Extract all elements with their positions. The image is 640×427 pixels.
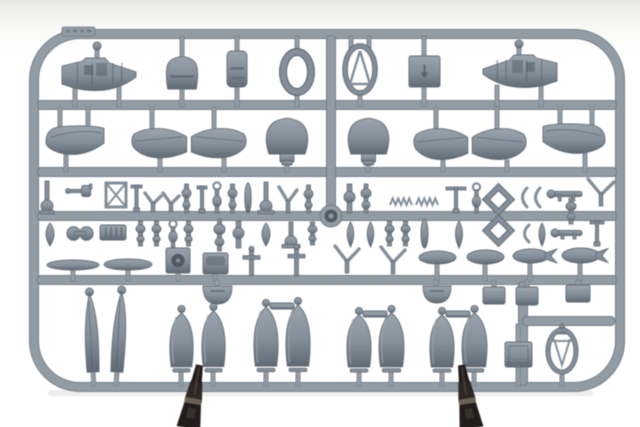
- part-spring-a: [390, 198, 412, 205]
- part-strut-x-frame: [106, 183, 126, 207]
- part-wing-outer-right: [543, 107, 605, 172]
- part-gear-fairing-left-b: [110, 286, 128, 387]
- part-t-strut: [446, 187, 466, 213]
- photo-stage: Grey injection-moulded plastic model air…: [0, 0, 640, 427]
- part-weight: [456, 221, 463, 248]
- part-rod-b: [152, 221, 161, 246]
- sprue: [34, 27, 620, 396]
- part-tail-fork-b: [381, 247, 405, 274]
- part-tripod-leg: [282, 222, 300, 248]
- part-clip-a: [523, 188, 528, 207]
- part-fairing-a: [347, 222, 354, 247]
- part-pushrod: [197, 186, 207, 213]
- part-tail-strut: [279, 187, 297, 213]
- part-cowling-cone-left: [266, 118, 307, 172]
- part-control-lever: [131, 185, 142, 212]
- part-rod-a: [136, 221, 145, 246]
- part-spring-b: [416, 198, 438, 205]
- part-wheel-spat-c1: [347, 307, 371, 386]
- part-canister: [262, 223, 270, 246]
- part-wheel-spat-d1: [430, 307, 454, 386]
- sprue-photo: [0, 0, 640, 427]
- part-rod-d: [308, 222, 317, 245]
- part-cylinder-b: [228, 184, 237, 213]
- part-rod-c: [184, 221, 193, 246]
- part-ring-pin: [213, 182, 221, 213]
- part-ball-pin-a: [472, 183, 480, 213]
- part-spat-bridge-c: [446, 311, 470, 317]
- part-tall-cylinder: [214, 219, 225, 251]
- rail-vertical-center: [326, 35, 336, 211]
- injection-gate-boss: [320, 205, 342, 227]
- part-tail-fork-a: [335, 246, 359, 273]
- sprue-label-tab: [62, 27, 95, 36]
- part-wheel-spat-a1: [170, 305, 193, 386]
- part-spat-bridge-a: [270, 303, 294, 309]
- part-bracket-left: [40, 181, 54, 214]
- part-cowling-cone-right: [348, 118, 389, 172]
- part-twin-fairing: [67, 227, 93, 241]
- part-blade-small: [421, 219, 428, 248]
- part-control-cross-a: [243, 247, 260, 277]
- part-cowl-ring-rear: [548, 323, 576, 386]
- part-exhaust-rail: [547, 190, 582, 201]
- part-prop-shaft: [233, 221, 244, 248]
- part-gear-fairing-left-a: [82, 288, 100, 387]
- part-cylinder-a: [182, 184, 191, 213]
- part-wheel-spat-b1: [254, 299, 278, 386]
- part-seat-support: [227, 36, 247, 107]
- part-cowl-top-panel: [166, 36, 197, 107]
- part-spat-bridge-b: [363, 311, 387, 317]
- part-fairing-b: [367, 222, 374, 247]
- part-wing-lower-pair: [414, 107, 526, 172]
- part-wheel-spat-a2: [202, 303, 225, 386]
- part-control-cross-b: [288, 245, 305, 277]
- part-wing-outer-left: [46, 107, 104, 172]
- part-skid-rail: [551, 229, 582, 239]
- part-fuselage-half-right: [483, 40, 557, 107]
- part-cylinder-c: [304, 185, 313, 213]
- part-cowl-ring-front: [283, 36, 311, 107]
- rail-branch-right-bay: [522, 316, 615, 326]
- part-foot-fairing: [46, 223, 54, 246]
- part-hub-shaft: [344, 184, 355, 213]
- part-windscreen-frame: [345, 36, 375, 107]
- part-sight-frame-upper: [486, 185, 511, 214]
- part-linkage-b: [163, 193, 179, 212]
- part-cylinder-d: [361, 184, 371, 213]
- part-mast: [245, 183, 251, 213]
- part-step-bracket: [590, 221, 604, 246]
- part-wheel-spat-c2: [379, 305, 404, 386]
- part-wishbone: [588, 179, 614, 206]
- part-fairing-c: [539, 223, 545, 246]
- part-fuselage-half-left: [62, 42, 136, 107]
- part-radiator: [100, 225, 126, 240]
- part-rod-e: [385, 221, 394, 246]
- part-machine-gun: [66, 184, 92, 197]
- part-wing-upper-pair: [132, 107, 246, 172]
- part-wheel-spat-b2: [286, 297, 310, 386]
- part-hatch-panel: [409, 36, 440, 107]
- part-clip-c: [525, 225, 530, 242]
- part-gear-leg: [258, 182, 274, 214]
- part-ball-pin-b: [169, 220, 177, 247]
- part-rod-f: [401, 221, 410, 246]
- part-linkage-a: [145, 193, 161, 212]
- part-clip-b: [536, 188, 541, 207]
